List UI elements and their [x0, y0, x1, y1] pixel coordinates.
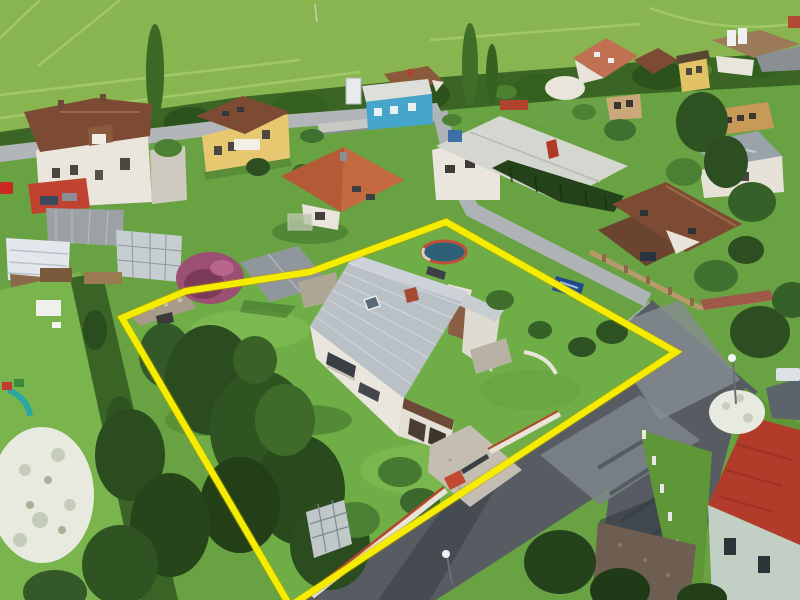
greenhouse-large [116, 230, 182, 282]
red-car [0, 182, 13, 194]
tan-house [606, 94, 642, 120]
poplar-tree [486, 44, 498, 104]
pergola [288, 214, 312, 230]
white-van [738, 28, 747, 44]
camper-van [346, 78, 361, 104]
white-vehicle [776, 368, 800, 381]
blue-tarp [448, 130, 462, 142]
garden-shed [40, 268, 72, 282]
blossom-tree [545, 76, 585, 100]
round-pool [422, 241, 466, 263]
aerial-photo [0, 0, 800, 600]
purple-tree [176, 252, 244, 304]
parked-car [640, 252, 656, 261]
white-van [727, 30, 736, 46]
barn-roof [46, 208, 124, 246]
garden-table [36, 300, 61, 316]
poplar-tree [462, 23, 478, 107]
aerial-photo-canvas [0, 0, 800, 600]
balcony [234, 139, 260, 150]
